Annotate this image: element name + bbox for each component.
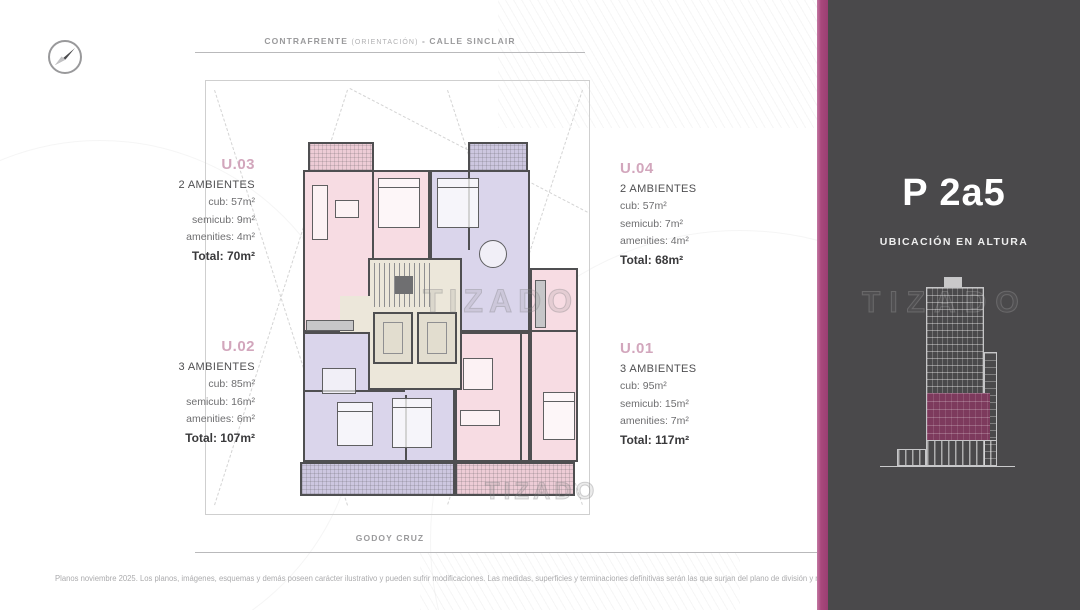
dining-table xyxy=(463,358,493,390)
unit-id: U.02 xyxy=(85,338,255,356)
unit-rooms: 3 AMBIENTES xyxy=(620,361,790,379)
street-top-main: CONTRAFRENTE xyxy=(264,36,348,46)
street-label-bottom: GODOY CRUZ xyxy=(195,533,585,543)
unit-specs-u01: U.01 3 AMBIENTES cub: 95m² semicub: 15m²… xyxy=(620,340,790,449)
unit-rooms: 2 AMBIENTES xyxy=(85,177,255,195)
unit-id: U.01 xyxy=(620,340,790,358)
unit-cub: cub: 57m² xyxy=(620,198,790,216)
sofa xyxy=(460,410,500,426)
highlighted-floors-p2a5 xyxy=(927,393,990,440)
unit-specs-u02: U.02 3 AMBIENTES cub: 85m² semicub: 16m²… xyxy=(85,338,255,447)
unit-amenities: amenities: 7m² xyxy=(620,413,790,431)
elevator-cab xyxy=(427,322,447,354)
balcony-top-right xyxy=(468,142,528,172)
bed xyxy=(337,402,373,446)
unit-total: Total: 117m² xyxy=(620,432,790,450)
brochure-page: CONTRAFRENTE (ORIENTACIÓN) - CALLE SINCL… xyxy=(0,0,1080,610)
sofa xyxy=(312,185,328,240)
bed xyxy=(378,178,420,228)
ground-line xyxy=(880,466,1015,467)
unit-semicub: semicub: 7m² xyxy=(620,216,790,234)
tower-elevation: TIZADO xyxy=(828,0,1080,610)
balcony-top-left xyxy=(308,142,374,172)
coffee-table xyxy=(335,200,359,218)
street-top-note: (ORIENTACIÓN) xyxy=(351,39,418,46)
street-rule-bottom xyxy=(195,552,817,553)
kitchen-counter xyxy=(306,320,354,331)
stairs-landing xyxy=(395,276,413,294)
accent-stripe xyxy=(817,0,828,610)
street-rule-top xyxy=(195,52,585,53)
unit-amenities: amenities: 4m² xyxy=(85,229,255,247)
unit-specs-u04: U.04 2 AMBIENTES cub: 57m² semicub: 7m² … xyxy=(620,160,790,269)
tower-ground-floor xyxy=(926,440,997,466)
interior-wall xyxy=(520,332,522,462)
compass-icon xyxy=(47,39,83,75)
floor-plan: TIZADO TIZADO xyxy=(205,80,590,515)
dining-table-round xyxy=(479,240,507,268)
elevator-cab xyxy=(383,322,403,354)
watermark-logo: TIZADO xyxy=(423,283,578,320)
side-panel: P 2a5 UBICACIÓN EN ALTURA TIZADO xyxy=(828,0,1080,610)
plan-canvas: CONTRAFRENTE (ORIENTACIÓN) - CALLE SINCL… xyxy=(0,0,817,610)
bed xyxy=(543,392,575,440)
unit-semicub: semicub: 9m² xyxy=(85,212,255,230)
unit-u01-area xyxy=(455,332,530,462)
unit-amenities: amenities: 6m² xyxy=(85,411,255,429)
balcony-bottom-left xyxy=(300,462,455,496)
unit-semicub: semicub: 15m² xyxy=(620,396,790,414)
unit-semicub: semicub: 16m² xyxy=(85,394,255,412)
unit-id: U.04 xyxy=(620,160,790,178)
unit-total: Total: 70m² xyxy=(85,248,255,266)
bed xyxy=(437,178,479,228)
bed xyxy=(392,398,432,448)
unit-specs-u03: U.03 2 AMBIENTES cub: 57m² semicub: 9m² … xyxy=(85,156,255,265)
unit-amenities: amenities: 4m² xyxy=(620,233,790,251)
watermark-logo: TIZADO xyxy=(485,478,598,506)
street-label-top: CONTRAFRENTE (ORIENTACIÓN) - CALLE SINCL… xyxy=(195,36,585,46)
interior-wall xyxy=(530,330,578,332)
elevator xyxy=(373,312,413,364)
unit-cub: cub: 57m² xyxy=(85,194,255,212)
unit-cub: cub: 85m² xyxy=(85,376,255,394)
dining-table xyxy=(322,368,356,394)
interior-wall xyxy=(372,170,374,258)
street-top-name: - CALLE SINCLAIR xyxy=(422,36,516,46)
unit-rooms: 2 AMBIENTES xyxy=(620,181,790,199)
unit-total: Total: 107m² xyxy=(85,430,255,448)
unit-rooms: 3 AMBIENTES xyxy=(85,359,255,377)
tower-side-annex xyxy=(897,449,926,466)
disclaimer-text: Planos noviembre 2025. Los planos, imáge… xyxy=(55,574,817,583)
unit-id: U.03 xyxy=(85,156,255,174)
unit-total: Total: 68m² xyxy=(620,252,790,270)
unit-cub: cub: 95m² xyxy=(620,378,790,396)
